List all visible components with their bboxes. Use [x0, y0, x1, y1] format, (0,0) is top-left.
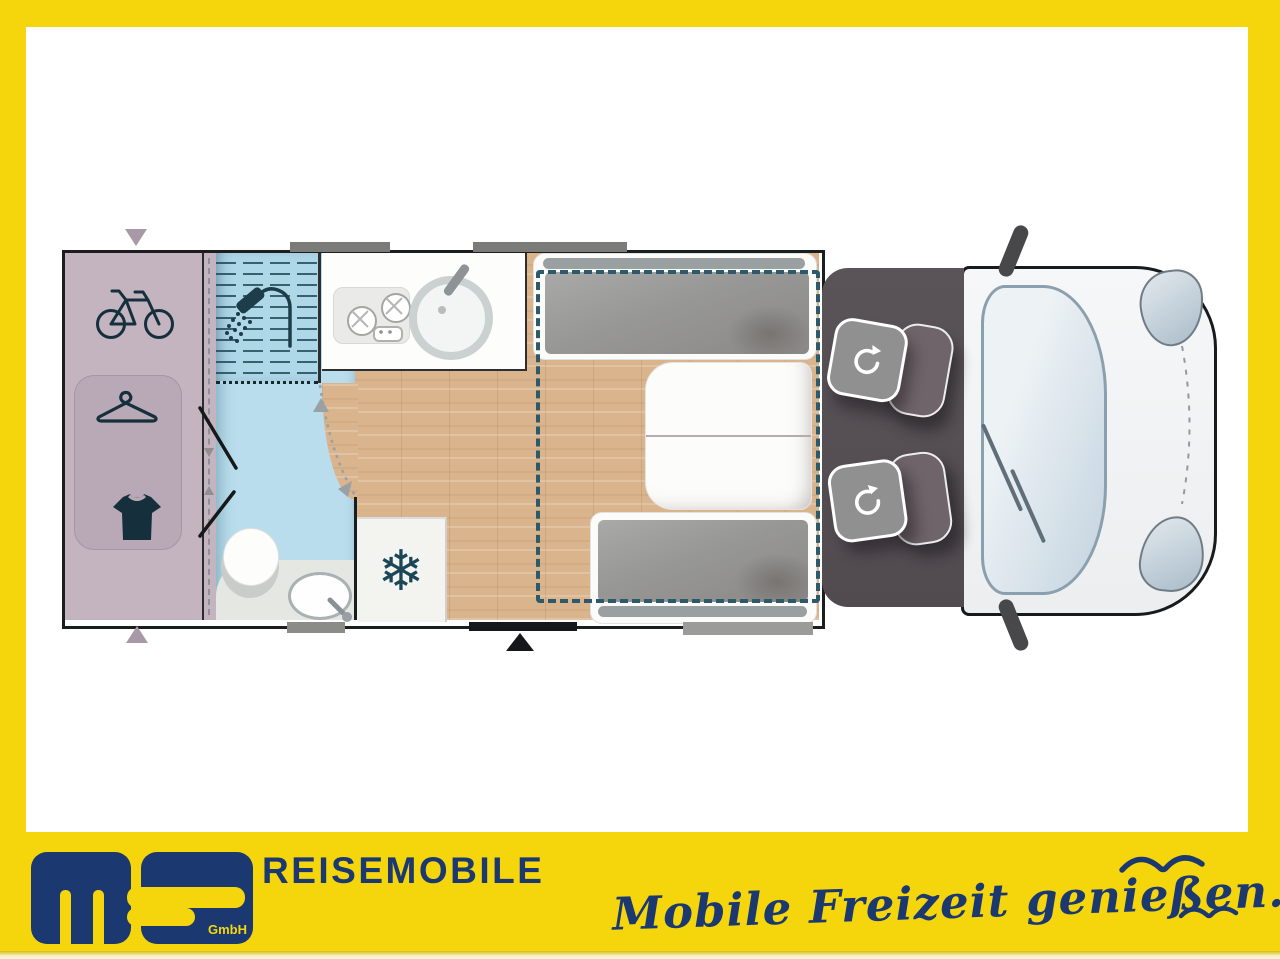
logo-gmbh: GmbH	[195, 922, 247, 937]
frame-right	[1248, 0, 1280, 959]
frame-left	[0, 0, 26, 959]
flyer-canvas: ❄	[0, 0, 1280, 959]
logo-s-slot-2	[127, 908, 195, 926]
seagull-large-icon	[1118, 846, 1206, 888]
logo-m-slot-2	[93, 890, 104, 944]
seagull-small-icon	[1178, 900, 1240, 930]
frame-top	[0, 0, 1280, 27]
brand-name: REISEMOBILE	[262, 850, 544, 892]
logo-m-block	[31, 852, 131, 944]
logo-m-slot-1	[60, 890, 71, 944]
logo-s-slot-1	[127, 887, 245, 908]
plan-linework	[0, 0, 1280, 959]
bottom-edge	[0, 951, 1280, 959]
